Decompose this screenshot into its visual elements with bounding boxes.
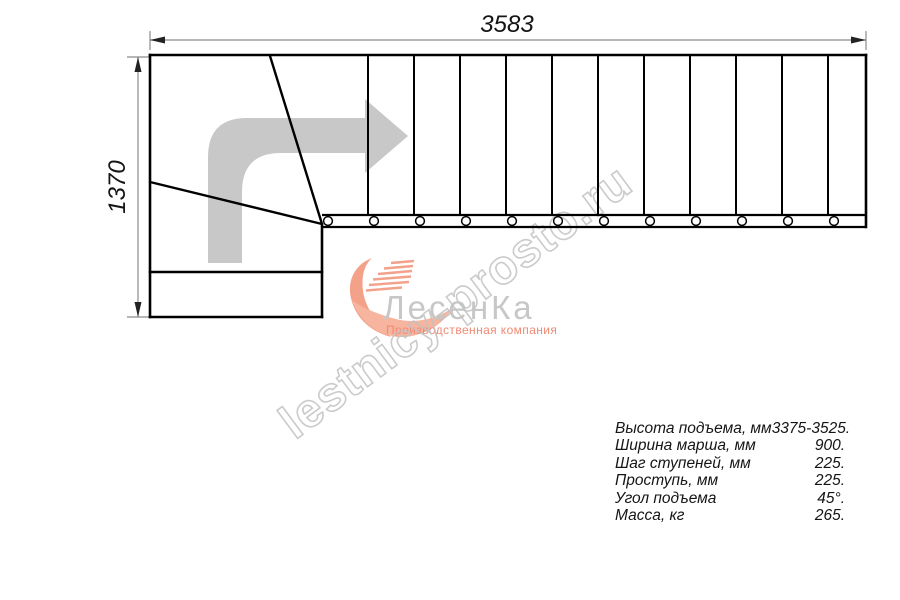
spec-label: Проступь, мм <box>615 472 718 489</box>
spec-value: 225. <box>815 455 845 472</box>
table-row: Высота подъема, мм 3375-3525. <box>615 420 845 437</box>
stair-plan-drawing: ЛесенКа Производственная компания lestni… <box>0 0 900 600</box>
stair-outline <box>150 55 866 317</box>
table-row: Шаг ступеней, мм 225. <box>615 455 845 472</box>
tread-lines <box>368 55 828 215</box>
table-row: Проступь, мм 225. <box>615 472 845 489</box>
spec-value: 265. <box>815 507 845 524</box>
specs-table: Высота подъема, мм 3375-3525. Ширина мар… <box>615 420 845 524</box>
top-dimension-label: 3583 <box>480 11 533 39</box>
spec-value: 900. <box>815 437 845 454</box>
spec-label: Ширина марша, мм <box>615 437 756 454</box>
spec-value: 45°. <box>817 490 845 507</box>
baluster-circles <box>324 217 839 226</box>
spec-value: 3375-3525. <box>772 420 850 437</box>
spec-label: Шаг ступеней, мм <box>615 455 751 472</box>
spec-label: Высота подъема, мм <box>615 420 772 437</box>
spec-label: Масса, кг <box>615 507 684 524</box>
spec-value: 225. <box>815 472 845 489</box>
left-dimension-label: 1370 <box>104 160 132 213</box>
table-row: Ширина марша, мм 900. <box>615 437 845 454</box>
table-row: Угол подъема 45°. <box>615 490 845 507</box>
table-row: Масса, кг 265. <box>615 507 845 524</box>
spec-label: Угол подъема <box>615 490 716 507</box>
